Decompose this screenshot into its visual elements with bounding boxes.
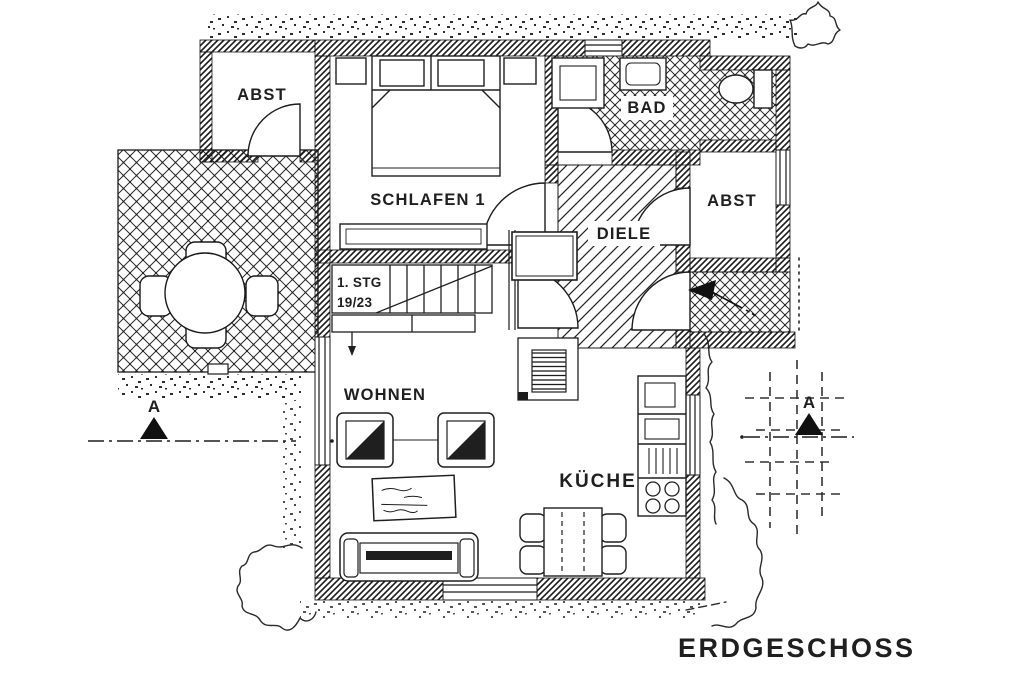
- label-kueche: KÜCHE: [559, 471, 637, 492]
- dining-chair: [520, 546, 546, 574]
- section-line-dot-inner-left: [330, 439, 334, 443]
- label-diele: DIELE: [597, 225, 652, 243]
- dining-table: [544, 508, 602, 576]
- patio-chair-right: [246, 276, 278, 316]
- floor-plan-page: A A: [0, 0, 1024, 683]
- stair-note-line2: 19/23: [337, 295, 372, 310]
- stair-note-line1: 1. STG: [337, 275, 382, 290]
- window-north-bad: [585, 40, 622, 56]
- dining-chair: [520, 514, 546, 542]
- vegetation-top-band: [208, 14, 798, 38]
- diele-closet: [512, 232, 577, 280]
- vegetation-strip-below-terrace: [118, 374, 303, 398]
- fireplace: [518, 338, 578, 400]
- label-wohnen: WOHNEN: [344, 386, 426, 404]
- pillow-right: [438, 60, 484, 86]
- coffee-table: [372, 475, 456, 521]
- pillow-left: [380, 60, 424, 86]
- patio-door-west: [315, 337, 330, 465]
- nightstand-left: [336, 58, 366, 84]
- entry-porch-floor: [690, 272, 790, 332]
- section-marker-left-label: A: [148, 397, 160, 416]
- vegetation-bottom-band: [300, 600, 700, 618]
- label-abst-right: ABST: [707, 192, 757, 210]
- stair-shelf: [332, 315, 475, 332]
- window-east-kueche: [686, 395, 700, 475]
- kitchen-counter: [638, 376, 686, 516]
- dining-chair: [600, 546, 626, 574]
- toilet-tank: [754, 70, 772, 108]
- label-abst-left: ABST: [237, 86, 287, 104]
- nightstand-right: [504, 58, 536, 84]
- sofa: [340, 533, 478, 581]
- patio-table: [165, 253, 245, 333]
- plan-title: ERDGESCHOSS: [678, 633, 916, 663]
- dining-set: [520, 508, 626, 576]
- terrace-gate-mark: [208, 364, 228, 374]
- vegetation-strip-left: [283, 400, 303, 548]
- section-marker-right-label: A: [803, 393, 815, 412]
- window-east-abst: [776, 150, 790, 205]
- floor-plan-drawing: A A: [0, 0, 1024, 683]
- toilet-bowl: [719, 75, 753, 103]
- dining-chair: [600, 514, 626, 542]
- section-line-dot-inner-right: [740, 435, 744, 439]
- terrace: [118, 150, 318, 374]
- label-schlafen: SCHLAFEN 1: [370, 191, 486, 209]
- kitchen-sink: [645, 419, 679, 439]
- label-bad: BAD: [627, 99, 666, 117]
